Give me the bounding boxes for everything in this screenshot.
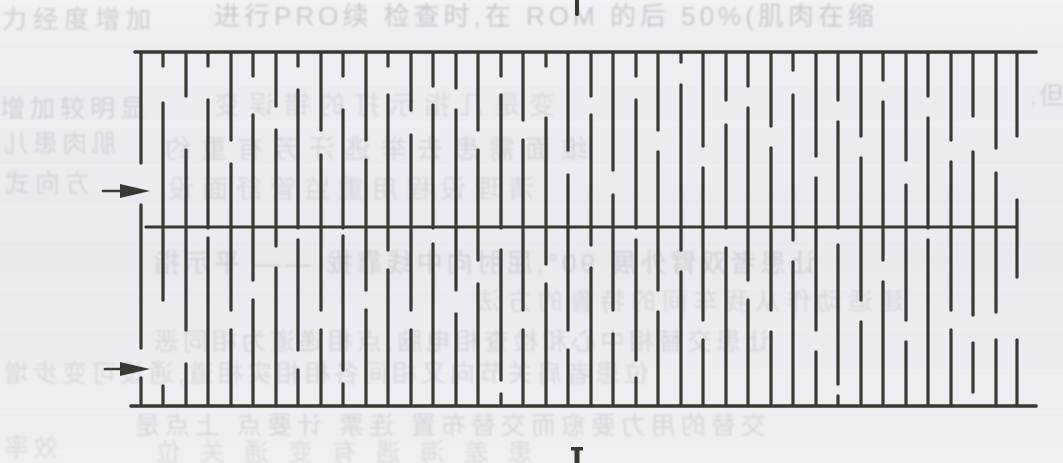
upper-pointer-arrowhead-icon <box>120 184 150 198</box>
lower-pointer-arrowhead-icon <box>120 362 150 376</box>
bottom-center-glyph-stem <box>575 447 580 463</box>
figure-canvas <box>0 0 1063 463</box>
scanned-page: 力经度增加进行PRO续 检查时,在 ROM 的后 50%(肌肉在缩,但增加较明显… <box>0 0 1063 463</box>
